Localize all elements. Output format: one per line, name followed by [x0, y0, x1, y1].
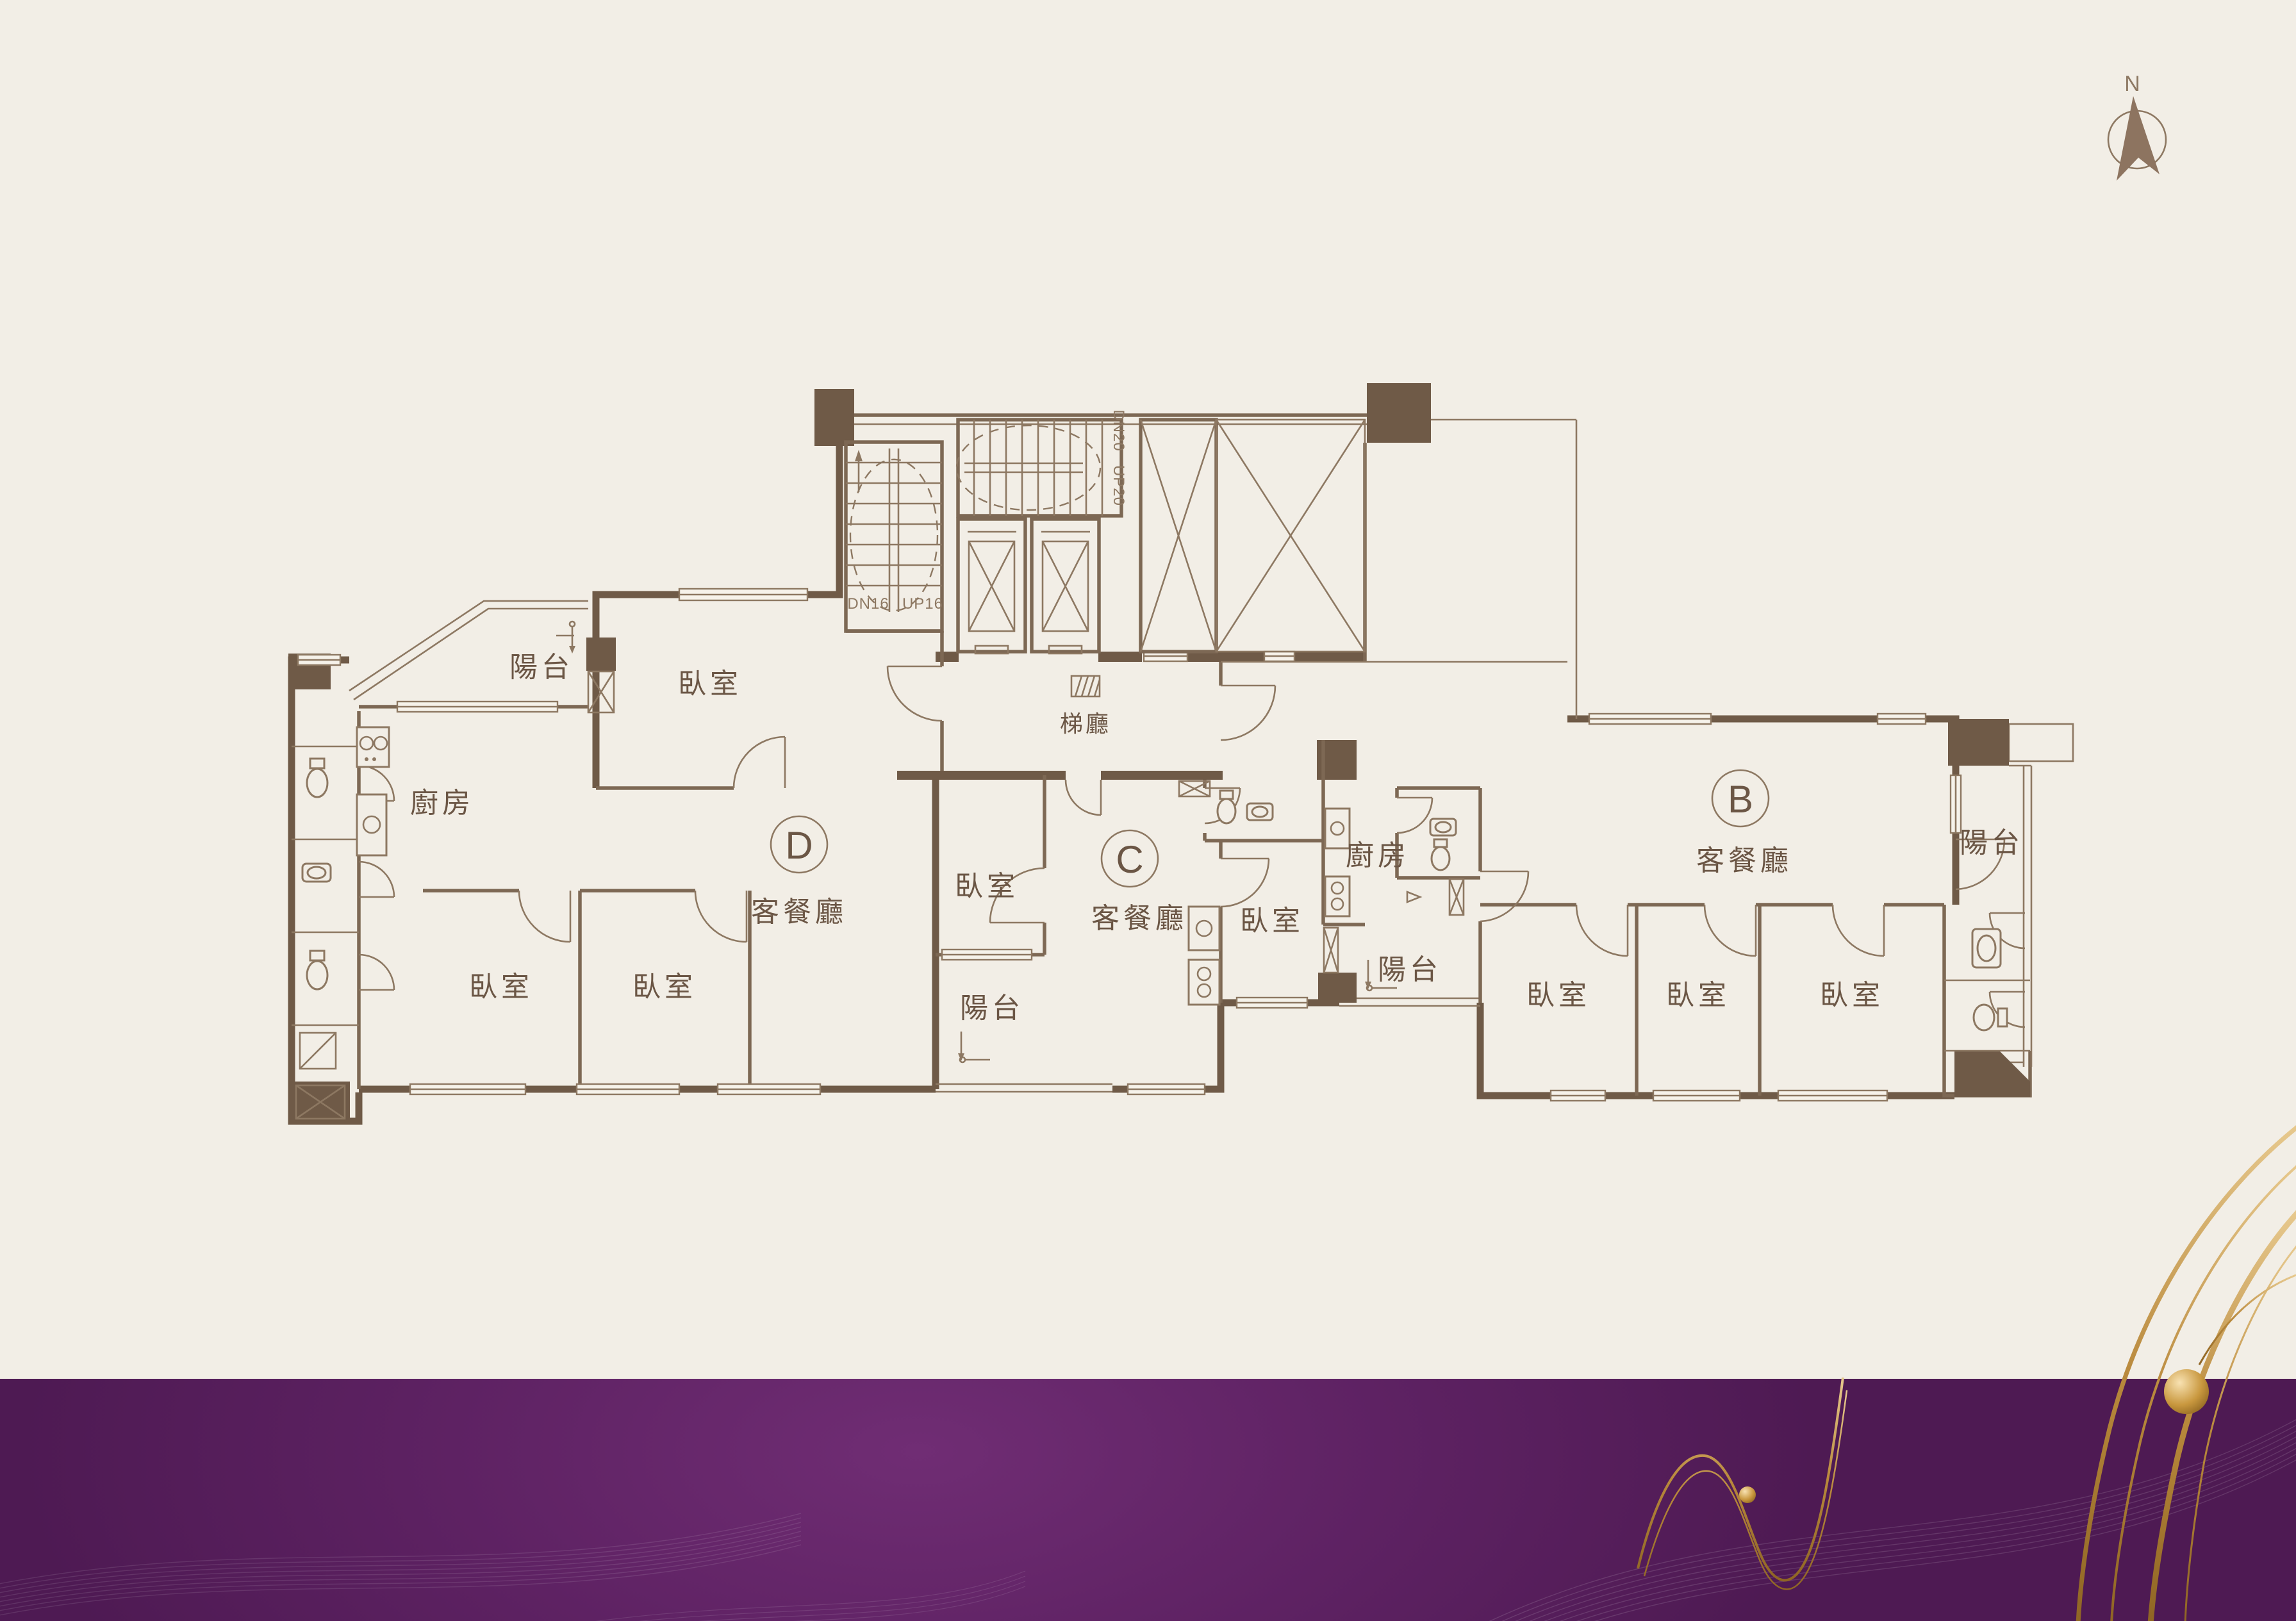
room-label-b-living: 客餐廳: [1696, 845, 1792, 876]
basin-icon: [302, 864, 331, 882]
basin-icon: [1247, 803, 1273, 820]
interior-walls: [292, 415, 2030, 1096]
light-wells: [1141, 420, 1365, 652]
stove-icon: [1189, 960, 1219, 1005]
footer-banner: RAINBOW C A S A 虹韻 8-12F 樓層平面參考圖 若主管機關要求…: [0, 1379, 2296, 1621]
north-arrow-icon: N: [2108, 72, 2166, 181]
floor-plan: DN16 UP16 DN20 UP20: [0, 0, 2296, 1621]
room-label-b-kitchen: 廚房: [1346, 840, 1410, 871]
room-label-d-kitchen: 廚房: [410, 787, 474, 819]
structural-columns: [288, 383, 2030, 1123]
unit-letter-c: C: [1116, 838, 1143, 881]
room-label-c-bedroom-2: 臥室: [1240, 905, 1304, 937]
stove-icon: [357, 727, 389, 767]
balcony-rails: [349, 601, 2073, 1092]
room-label-c-living: 客餐廳: [1091, 903, 1187, 934]
toilet-icon: [1218, 791, 1235, 823]
elevators: [958, 519, 1099, 654]
toilet-icon: [307, 951, 327, 989]
stair-label-up16: UP16: [902, 595, 943, 613]
room-label-b-balcony: 陽台: [1960, 827, 2024, 859]
basin-icon: [1430, 819, 1456, 835]
unit-letter-d: D: [785, 824, 813, 867]
shower-icon: [300, 1033, 336, 1069]
room-label-lobby: 梯廳: [1060, 711, 1111, 737]
lobby-hatch: [1071, 676, 1100, 696]
stove-icon: [1325, 876, 1350, 916]
room-label-d-bedroom-top: 臥室: [678, 668, 742, 700]
floor-plan-board: DN16 UP16 DN20 UP20: [0, 0, 2296, 1621]
room-label-d-living: 客餐廳: [751, 896, 847, 928]
stair-label-dn20: DN20: [1110, 409, 1127, 451]
room-label-d-bedroom-1: 臥室: [469, 971, 533, 1003]
unit-letter-b: B: [1728, 778, 1753, 821]
room-label-c-balcony: 陽台: [960, 992, 1024, 1024]
sink-icon: [1189, 907, 1219, 950]
banner-wave-decoration: [0, 1379, 2296, 1621]
stair-label-dn16: DN16: [847, 595, 889, 613]
room-label-b-bedroom-1: 臥室: [1526, 980, 1590, 1011]
basin-icon: [1972, 929, 2001, 967]
room-label-b-bedroom-3: 臥室: [1820, 980, 1884, 1011]
toilet-icon: [307, 759, 327, 797]
room-label-d-balcony: 陽台: [509, 652, 574, 683]
room-label-b-bedroom-2: 臥室: [1666, 980, 1730, 1011]
sink-icon: [357, 794, 386, 855]
room-label-d-bedroom-2: 臥室: [632, 971, 697, 1003]
duct-shafts: [296, 671, 1464, 1119]
room-label-c-bedroom-1: 臥室: [955, 871, 1019, 902]
north-label: N: [2124, 72, 2141, 96]
toilet-icon: [1432, 839, 1449, 870]
toilet-icon: [1974, 1005, 2007, 1030]
room-label-b-service-balcony: 陽台: [1378, 954, 1442, 985]
exterior-walls: [292, 442, 2030, 1121]
stair-label-up20: UP20: [1110, 465, 1127, 506]
